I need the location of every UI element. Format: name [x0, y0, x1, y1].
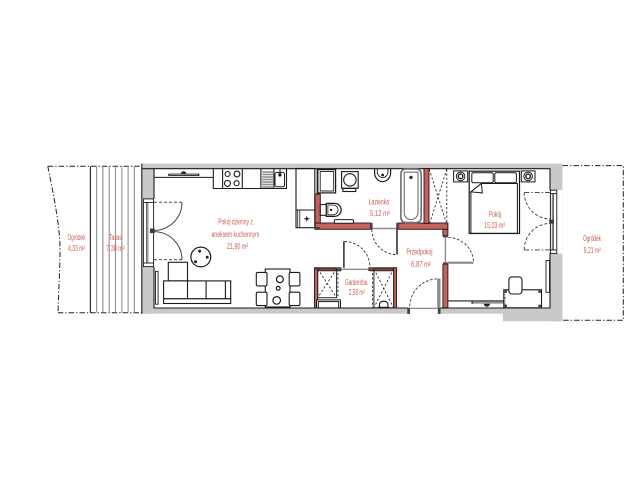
svg-text:15,03 m²: 15,03 m²: [484, 221, 505, 230]
svg-text:Ogródek: Ogródek: [583, 234, 602, 243]
svg-text:Pokój dzienny z: Pokój dzienny z: [218, 217, 253, 226]
svg-text:Łazienka: Łazienka: [369, 198, 390, 207]
svg-text:2,58 m²: 2,58 m²: [349, 288, 365, 297]
svg-text:9,21 m²: 9,21 m²: [584, 246, 601, 255]
svg-text:Pokój: Pokój: [489, 210, 502, 219]
svg-text:5,12 m²: 5,12 m²: [370, 209, 390, 218]
svg-text:Ogródek: Ogródek: [68, 233, 87, 242]
svg-text:Przedpokój: Przedpokój: [406, 247, 432, 256]
svg-text:21,90 m²: 21,90 m²: [227, 242, 249, 251]
svg-text:Garderoba: Garderoba: [345, 278, 368, 287]
svg-text:Taras: Taras: [109, 233, 122, 242]
svg-text:7,38 m²: 7,38 m²: [106, 244, 125, 253]
svg-text:aneksem kuchennym: aneksem kuchennym: [212, 230, 260, 239]
svg-text:4,33 m²: 4,33 m²: [68, 244, 85, 253]
svg-text:6,87 m²: 6,87 m²: [411, 260, 431, 269]
